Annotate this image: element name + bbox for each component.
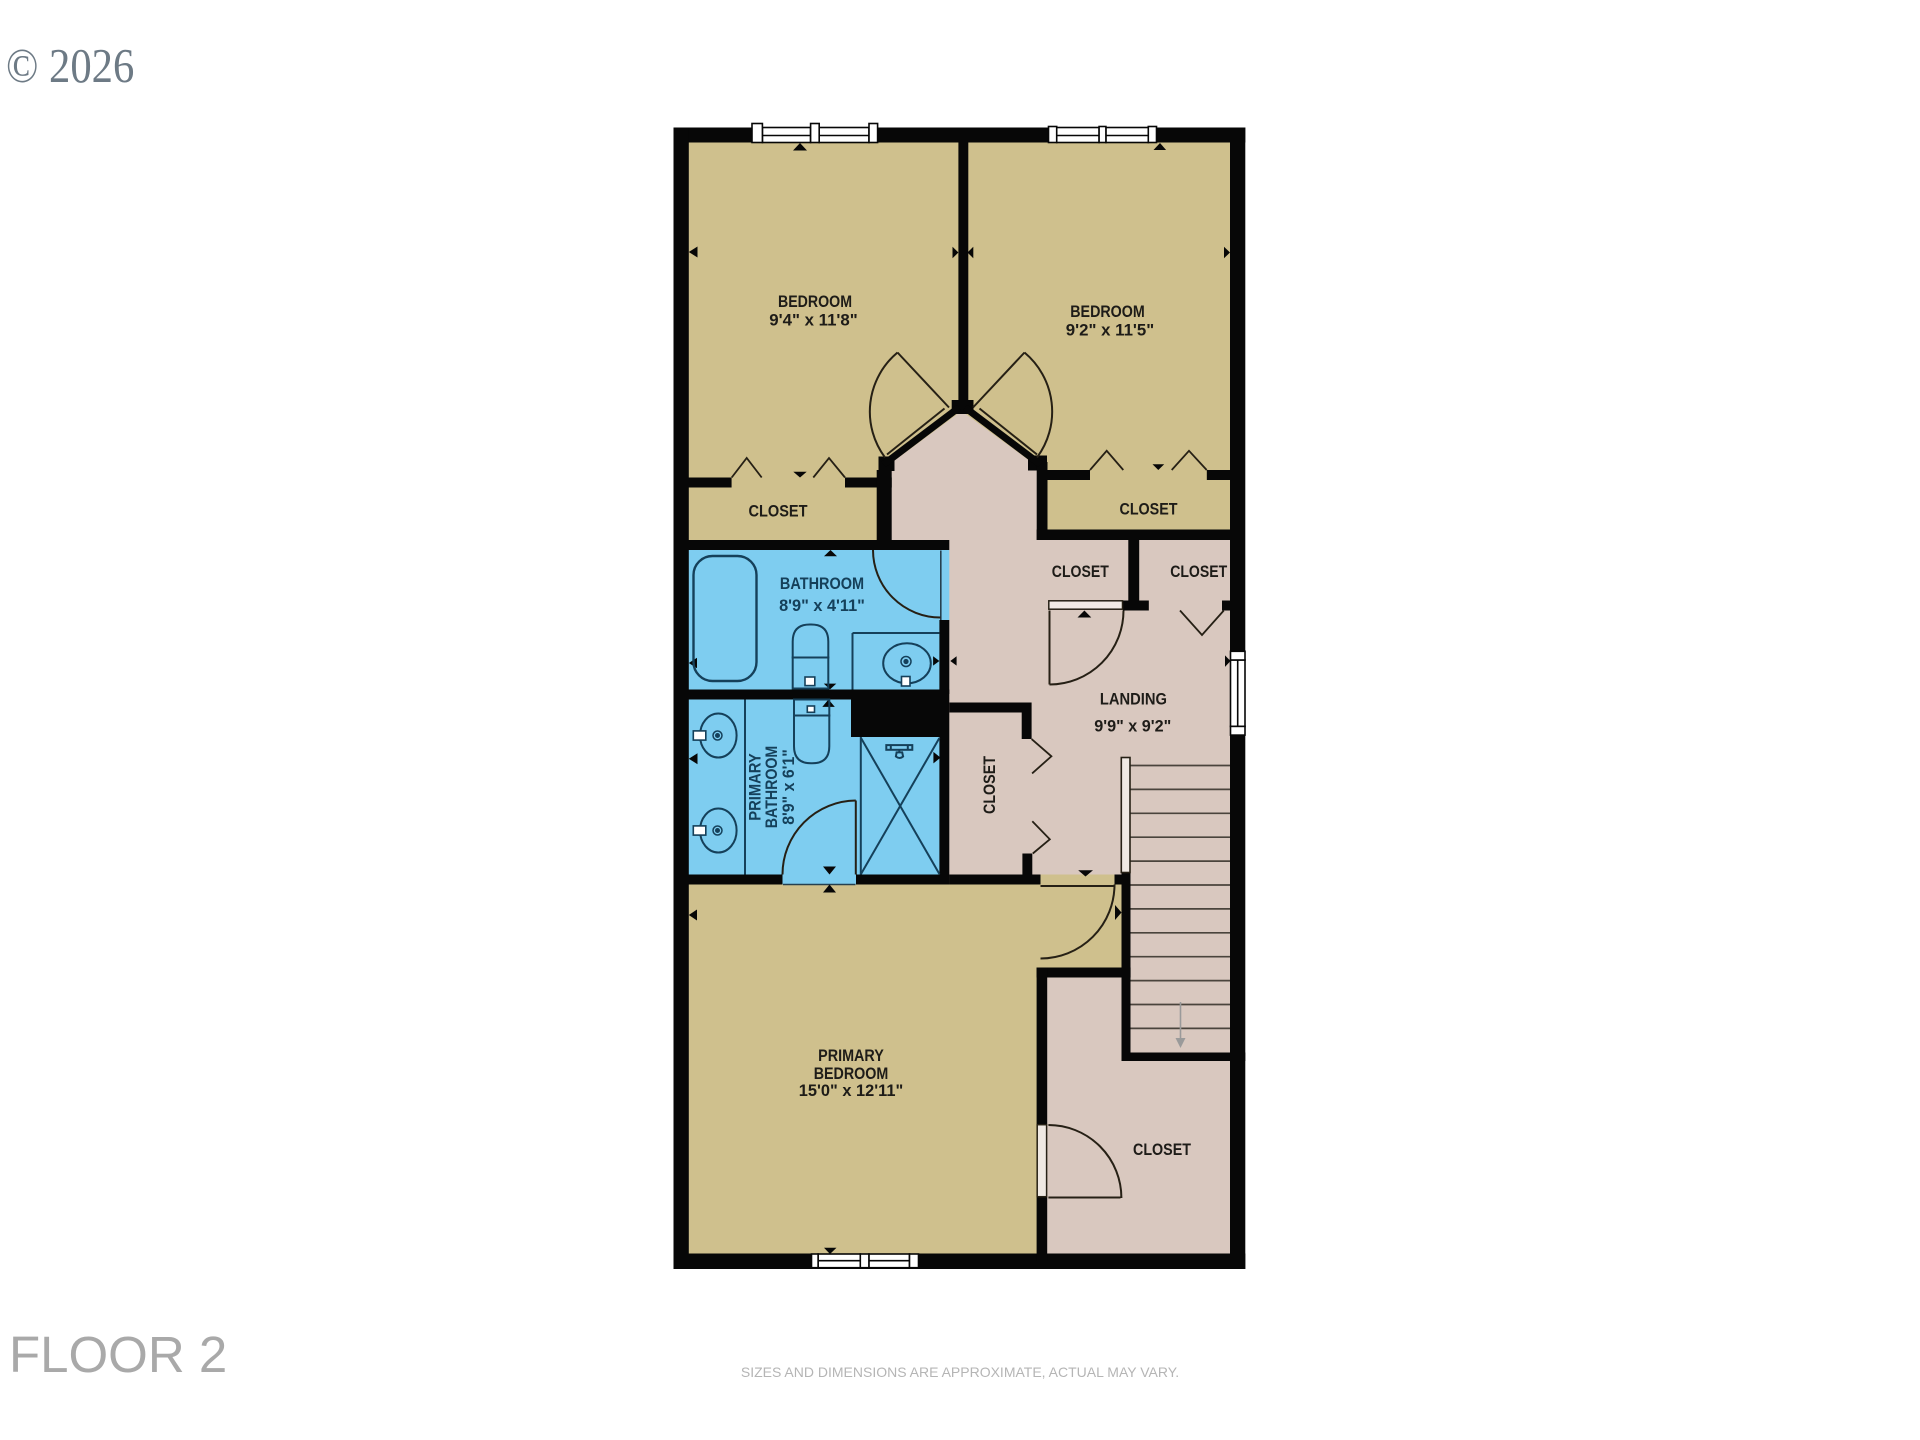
svg-text:PRIMARY: PRIMARY [818, 1047, 884, 1065]
svg-text:LANDING: LANDING [1100, 691, 1167, 709]
svg-text:BEDROOM: BEDROOM [1070, 303, 1145, 321]
svg-text:CLOSET: CLOSET [1052, 563, 1109, 581]
svg-text:CLOSET: CLOSET [749, 503, 808, 521]
svg-text:BEDROOM: BEDROOM [778, 293, 852, 311]
svg-text:8'9" x 6'1": 8'9" x 6'1" [780, 749, 798, 825]
svg-text:PRIMARY: PRIMARY [747, 753, 765, 821]
svg-text:BEDROOM: BEDROOM [814, 1065, 889, 1083]
svg-text:CLOSET: CLOSET [981, 756, 999, 814]
svg-text:8'9" x 4'11": 8'9" x 4'11" [779, 597, 865, 615]
svg-text:BATHROOM: BATHROOM [780, 575, 864, 593]
svg-text:CLOSET: CLOSET [1133, 1141, 1191, 1159]
svg-text:CLOSET: CLOSET [1120, 501, 1178, 519]
svg-text:9'4" x 11'8": 9'4" x 11'8" [769, 312, 858, 330]
svg-text:15'0" x 12'11": 15'0" x 12'11" [799, 1082, 904, 1100]
svg-text:BATHROOM: BATHROOM [763, 746, 781, 829]
svg-text:9'2" x 11'5": 9'2" x 11'5" [1066, 322, 1155, 340]
svg-text:9'9" x 9'2": 9'9" x 9'2" [1094, 718, 1171, 736]
svg-text:CLOSET: CLOSET [1170, 563, 1227, 581]
